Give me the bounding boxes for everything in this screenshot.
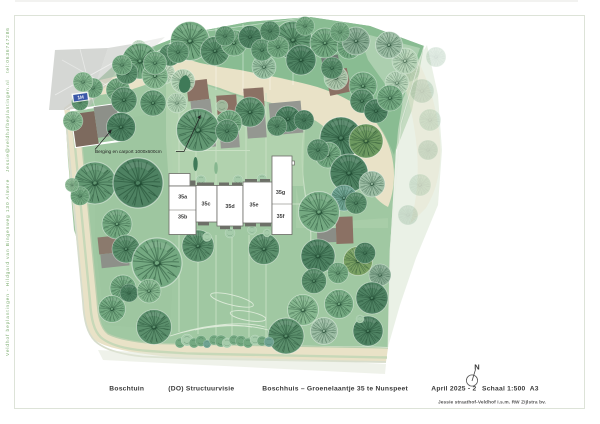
svg-text:Schaal 1:500: Schaal 1:500 bbox=[482, 386, 526, 393]
svg-text:35g: 35g bbox=[276, 190, 285, 196]
svg-text:1H: 1H bbox=[77, 95, 85, 102]
svg-text:N: N bbox=[474, 363, 479, 372]
svg-text:A3: A3 bbox=[530, 386, 539, 393]
svg-text:35a: 35a bbox=[178, 195, 188, 201]
svg-text:35f: 35f bbox=[277, 214, 285, 220]
svg-text:35e: 35e bbox=[250, 203, 259, 209]
svg-text:Veldhof beplantingen - Hildgar: Veldhof beplantingen - Hildgard van Bing… bbox=[5, 28, 11, 356]
svg-text:Boschhuis – Groenelaantje 35 t: Boschhuis – Groenelaantje 35 te Nunspeet bbox=[262, 386, 408, 393]
svg-text:35c: 35c bbox=[202, 202, 211, 208]
svg-text:35d: 35d bbox=[225, 204, 234, 210]
svg-text:35b: 35b bbox=[178, 215, 188, 221]
svg-text:Berging en carport 1000x600cm: Berging en carport 1000x600cm bbox=[95, 149, 162, 154]
svg-text:(DO) Structuurvisie: (DO) Structuurvisie bbox=[168, 386, 234, 393]
svg-text:Boschtuin: Boschtuin bbox=[109, 386, 144, 393]
svg-text:April 2025 - 2: April 2025 - 2 bbox=[431, 386, 476, 393]
svg-text:Jessie straathof-Veldhof i.s.m: Jessie straathof-Veldhof i.s.m. RW Zijls… bbox=[438, 400, 546, 406]
